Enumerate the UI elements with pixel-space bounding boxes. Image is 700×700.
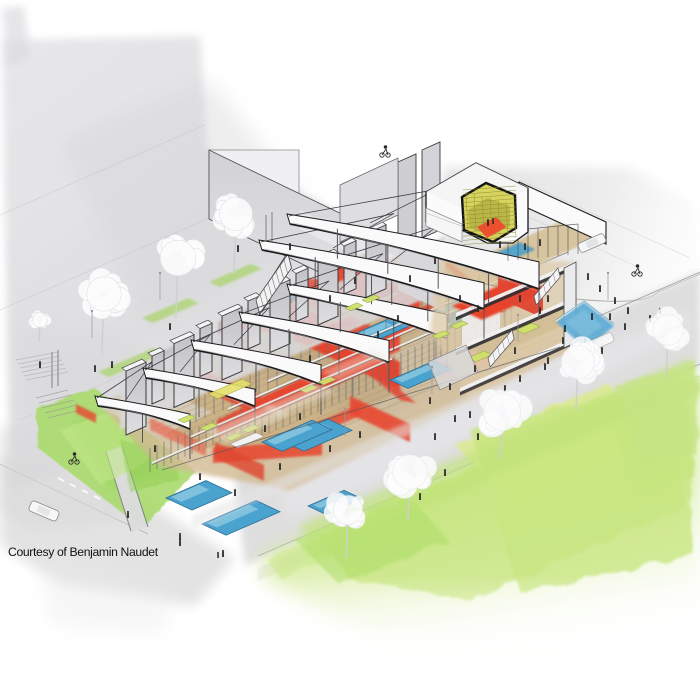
svg-text:Courtesy of Benjamin Naudet: Courtesy of Benjamin Naudet (8, 545, 159, 559)
